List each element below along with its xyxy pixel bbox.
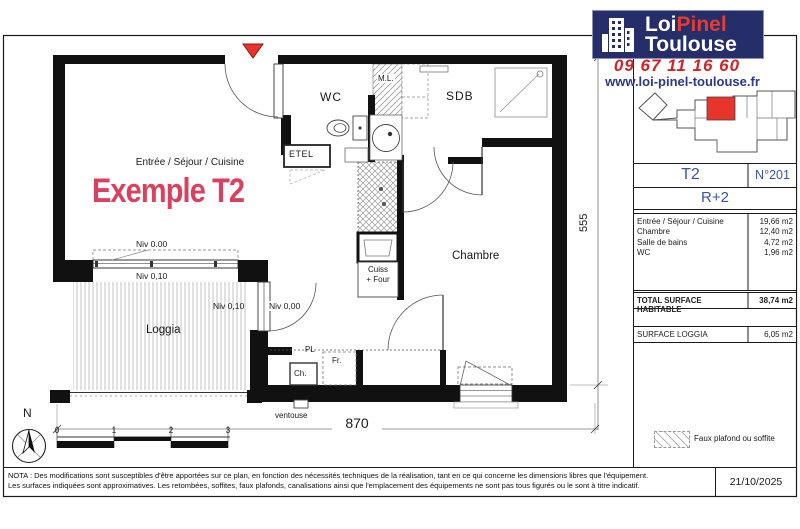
entrance-door-leaf	[274, 64, 283, 118]
ventouse-vent	[294, 400, 308, 408]
floor-level: R+2	[633, 187, 797, 209]
total-surface-label: TOTAL SURFACE HABITABLE	[637, 296, 747, 314]
shower-icon	[495, 68, 547, 117]
unit-type: T2	[633, 163, 748, 187]
fridge-label: Fr.	[332, 356, 341, 365]
level-label-loggia-top: Niv 0,10	[136, 271, 167, 281]
room-row-value: 1,96 m2	[748, 248, 796, 257]
nota-line-2: Les surfaces indiquées sont approximativ…	[8, 481, 710, 490]
faux-plafond-swatch	[654, 431, 690, 448]
key-plan-unit-highlight	[707, 97, 735, 120]
building-icon	[599, 15, 639, 55]
brand-logo: LoiPinel Toulouse	[592, 10, 764, 59]
scale-tick-1: 1	[110, 426, 118, 435]
plan-headline: Exemple T2	[92, 172, 244, 211]
chambre-room-label: Chambre	[452, 250, 499, 262]
room-row-label: Entrée / Séjour / Cuisine	[637, 217, 747, 226]
ventouse-label: ventouse	[275, 411, 307, 420]
scale-tick-0: 0	[53, 426, 61, 435]
entrance-arrow-icon	[243, 44, 263, 58]
toilet-icon	[327, 116, 367, 140]
chambre-window	[460, 385, 512, 402]
room-row-label: WC	[637, 248, 747, 257]
doors	[225, 64, 482, 350]
etel-label: ETEL	[289, 149, 314, 159]
room-row-label: Salle de bains	[637, 238, 747, 247]
wc-room-label: WC	[320, 90, 342, 104]
room-row-label: Chambre	[637, 227, 747, 236]
logo-toulouse: Toulouse	[645, 33, 737, 56]
washbasin-icon	[370, 115, 402, 160]
logo-wordmark: LoiPinel Toulouse	[645, 15, 737, 55]
boiler-label: Ch.	[294, 369, 306, 378]
total-surface-value: 38,74 m2	[745, 296, 796, 305]
loggia-room-label: Loggia	[146, 324, 181, 336]
loggia-surface-label: SURFACE LOGGIA	[637, 330, 747, 339]
sdb-room-label: SDB	[446, 89, 474, 103]
level-label-sejour: Niv 0.00	[136, 239, 167, 249]
level-label-loggia-right: Niv 0,10	[213, 301, 244, 311]
kitchen-label: Cuiss+ Four	[358, 265, 398, 285]
towel-bar	[420, 66, 448, 72]
phone-number: 09 67 11 16 60	[592, 56, 762, 76]
placard-label: PL	[305, 345, 315, 354]
room-row-value: 4,72 m2	[748, 238, 796, 247]
loggia-decking	[73, 282, 248, 390]
level-label-door: Niv 0,00	[269, 301, 300, 311]
room-group-label: Entrée / Séjour / Cuisine	[120, 157, 260, 168]
key-plan	[639, 91, 795, 152]
ml-closet-hatch	[373, 64, 402, 118]
website-link[interactable]: www.loi-pinel-toulouse.fr	[580, 74, 785, 89]
unit-number: N°201	[748, 163, 797, 187]
plan-date: 21/10/2025	[715, 468, 797, 496]
nota-line-1: NOTA : Des modifications sont susceptibl…	[8, 471, 710, 480]
scale-tick-2: 2	[167, 426, 175, 435]
kitchen-duct-hatch	[358, 162, 398, 233]
plan-sheet: LoiPinel Toulouse 09 67 11 16 60 www.loi…	[0, 0, 800, 529]
width-dimension: 870	[332, 415, 382, 431]
north-arrow-icon	[13, 430, 46, 463]
room-row-value: 19,66 m2	[748, 217, 796, 226]
north-label: N	[23, 406, 32, 420]
ml-label: M.L.	[377, 74, 395, 83]
scale-tick-3: 3	[224, 426, 232, 435]
legend-label: Faux plafond ou soffite	[694, 434, 775, 443]
height-dimension: 555	[578, 214, 590, 232]
shelf-box	[345, 148, 368, 162]
room-row-value: 12,40 m2	[748, 227, 796, 236]
loggia-surface-value: 6,05 m2	[745, 330, 796, 339]
kitchen-sink	[358, 233, 398, 262]
